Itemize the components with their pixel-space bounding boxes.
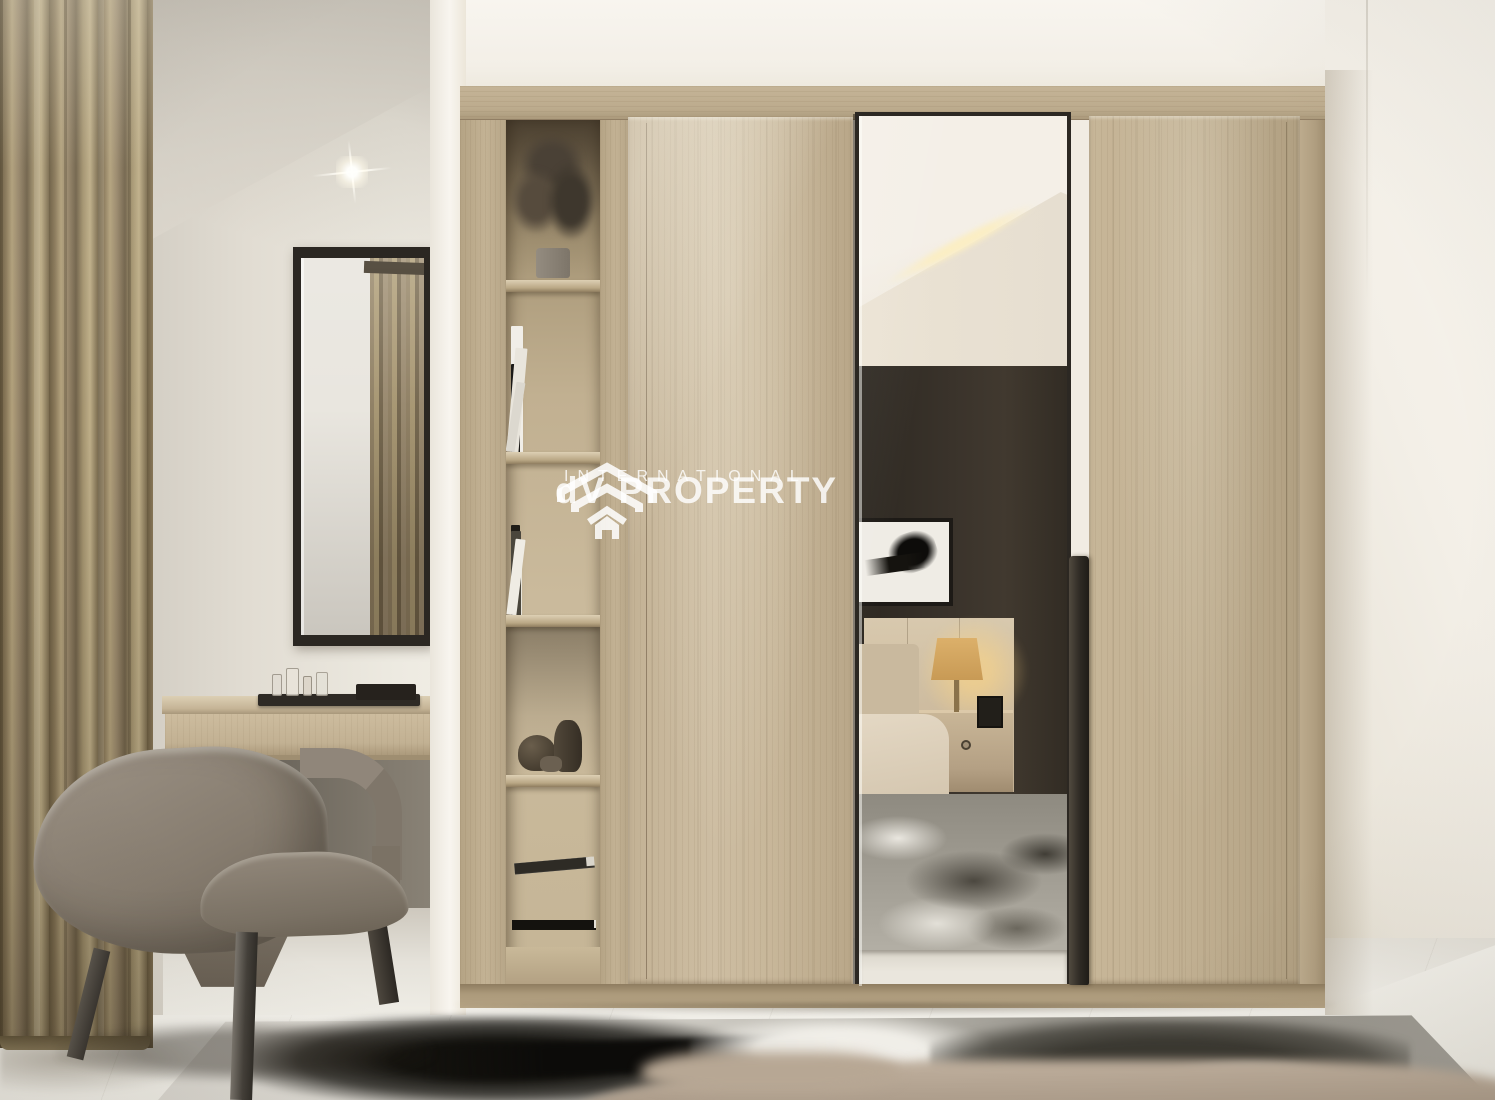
watermark-subtitle-text: INTERNATIONAL [555,468,808,486]
mirror-glass [301,258,424,635]
pottery-bowl [540,756,562,772]
wardrobe-cast-shadow [1325,70,1373,1015]
wardrobe-left-frame [460,120,506,1008]
spotlight-glow [336,156,368,188]
bedroom-render: dV PROPERTY INTERNATIONAL [0,0,1495,1100]
glass-bottle [303,676,312,696]
book-row [506,324,600,452]
watermark: dV PROPERTY INTERNATIONAL [555,462,945,642]
wardrobe-door-right [1089,116,1300,985]
wall-mirror [293,247,432,646]
plant-vase [536,248,570,278]
mirror-edge-highlight [301,258,304,635]
foreground-blur-bed-edge [640,1052,900,1092]
plant-foliage [546,162,596,240]
decor-box [356,684,416,700]
shelf-board [506,775,600,787]
book-spine [506,539,525,616]
niche-bottom-frame [506,947,600,984]
ceiling-spotlight [312,132,392,212]
glass-bottle [272,674,282,696]
book-spine [512,920,594,929]
wardrobe-floor-shadow [455,1003,1335,1015]
book-stack [514,857,594,864]
wardrobe-door-handle [1069,556,1089,985]
shelf-board [506,280,600,292]
glass-bottle [286,668,299,696]
wardrobe-right-frame [1300,120,1325,1008]
mirror-glass-shading [301,258,424,635]
glass-bottle [316,672,328,696]
door-groove [1286,122,1287,979]
